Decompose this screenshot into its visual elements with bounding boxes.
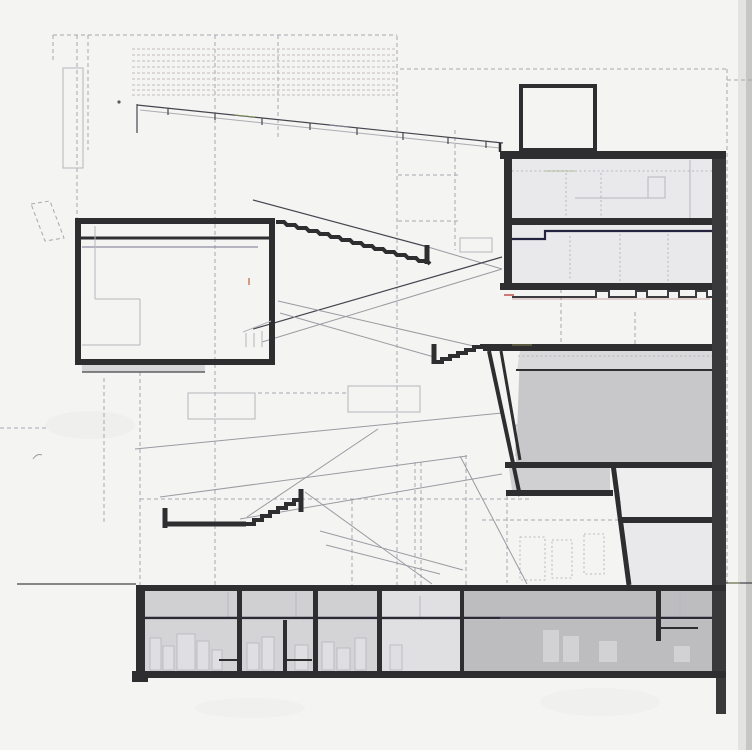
basement-left-wall bbox=[136, 585, 145, 677]
reading-room-floor-slab bbox=[505, 462, 712, 468]
reading-room-top-band bbox=[517, 351, 712, 370]
fixture-outline bbox=[563, 636, 579, 662]
basement-partition-short bbox=[656, 591, 661, 641]
fixture-outline bbox=[262, 637, 274, 670]
scanned-section-drawing bbox=[0, 0, 752, 750]
right-wall-footing bbox=[716, 678, 726, 714]
side-room-lower bbox=[624, 523, 712, 585]
page-edge-shadow-light bbox=[738, 0, 747, 750]
fixture-outline bbox=[543, 630, 559, 662]
basement-partition bbox=[377, 585, 382, 677]
basement-partition bbox=[460, 591, 464, 677]
basement-band-upper-right bbox=[462, 591, 712, 618]
page-edge-shadow bbox=[746, 0, 752, 750]
basement-partition-short bbox=[283, 620, 287, 671]
side-room-upper bbox=[617, 468, 712, 517]
floor-1-room bbox=[512, 159, 712, 218]
mezzanine-room bbox=[509, 468, 610, 490]
auditorium-underside bbox=[82, 365, 205, 372]
fixture-outline bbox=[390, 645, 402, 670]
basement-partition bbox=[313, 585, 318, 677]
scan-blotch bbox=[195, 698, 305, 718]
floor-slab-2 bbox=[504, 218, 712, 225]
mezzanine-slab bbox=[506, 490, 613, 496]
side-room-slab bbox=[621, 517, 712, 523]
fixture-outline bbox=[177, 634, 195, 670]
scan-blotch bbox=[540, 688, 660, 716]
reference-dot bbox=[117, 100, 120, 103]
floor-2-room bbox=[512, 225, 712, 283]
basement-floor-slab bbox=[136, 671, 726, 678]
fixture-outline bbox=[247, 643, 259, 670]
fixture-outline bbox=[295, 645, 308, 670]
fixture-outline bbox=[322, 642, 334, 670]
fixture-outline bbox=[674, 646, 690, 662]
fixture-outline bbox=[163, 646, 174, 670]
basement-band-upper-left bbox=[145, 591, 379, 618]
floor-slab-3 bbox=[500, 283, 712, 290]
basement-roof-slab bbox=[136, 585, 726, 591]
fixture-outline bbox=[599, 641, 617, 662]
fixture-outline bbox=[355, 638, 366, 670]
scan-blotch bbox=[45, 411, 135, 439]
fixture-outline bbox=[150, 638, 161, 670]
basement-partition bbox=[237, 585, 242, 677]
fixture-outline bbox=[197, 641, 209, 670]
roof-slab bbox=[500, 151, 726, 159]
basement-left-footing bbox=[132, 671, 148, 682]
fixture-outline bbox=[337, 648, 350, 670]
section-drawing-canvas bbox=[0, 0, 752, 750]
right-wall bbox=[712, 151, 726, 678]
